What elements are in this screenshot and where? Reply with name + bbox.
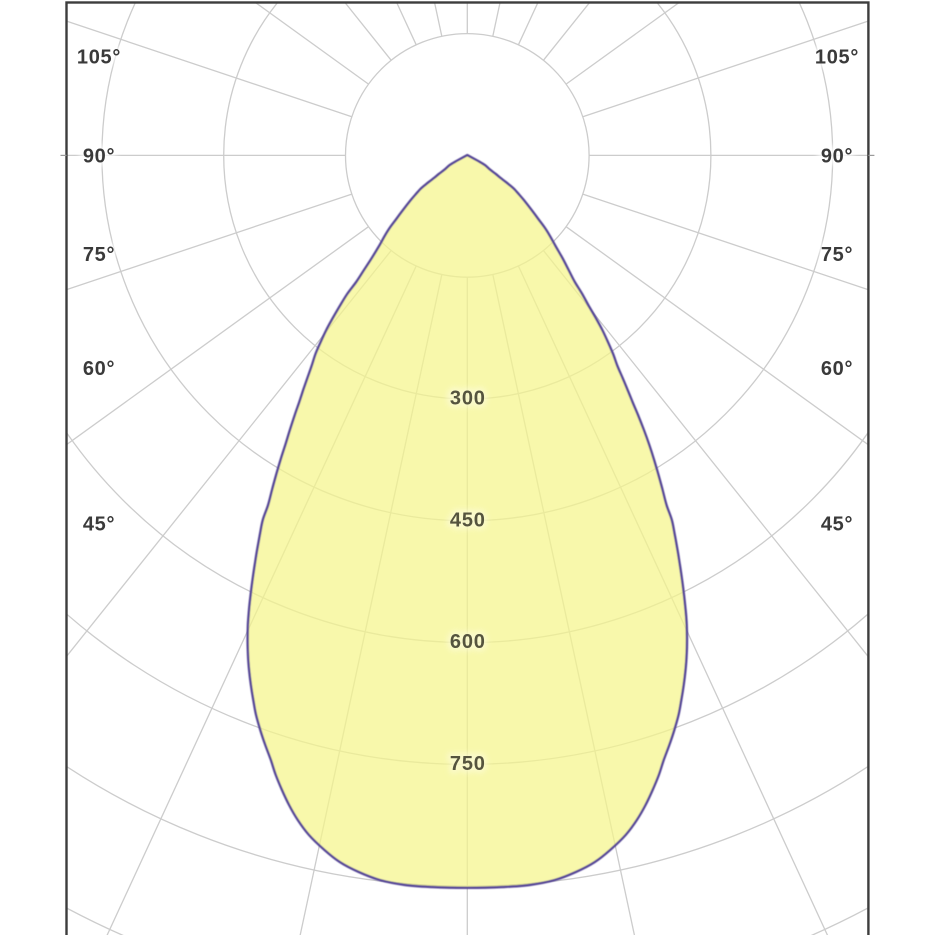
svg-text:60°: 60°	[83, 358, 115, 380]
svg-text:45°: 45°	[83, 514, 115, 536]
svg-text:90°: 90°	[83, 145, 115, 167]
svg-text:75°: 75°	[821, 244, 853, 266]
svg-text:45°: 45°	[821, 514, 853, 536]
svg-text:105°: 105°	[77, 47, 121, 69]
svg-text:600: 600	[450, 631, 486, 653]
svg-text:450: 450	[450, 509, 486, 531]
svg-text:90°: 90°	[821, 145, 853, 167]
svg-text:300: 300	[450, 388, 486, 410]
svg-text:75°: 75°	[83, 244, 115, 266]
svg-text:60°: 60°	[821, 358, 853, 380]
svg-text:750: 750	[450, 753, 486, 775]
svg-text:105°: 105°	[815, 47, 859, 69]
